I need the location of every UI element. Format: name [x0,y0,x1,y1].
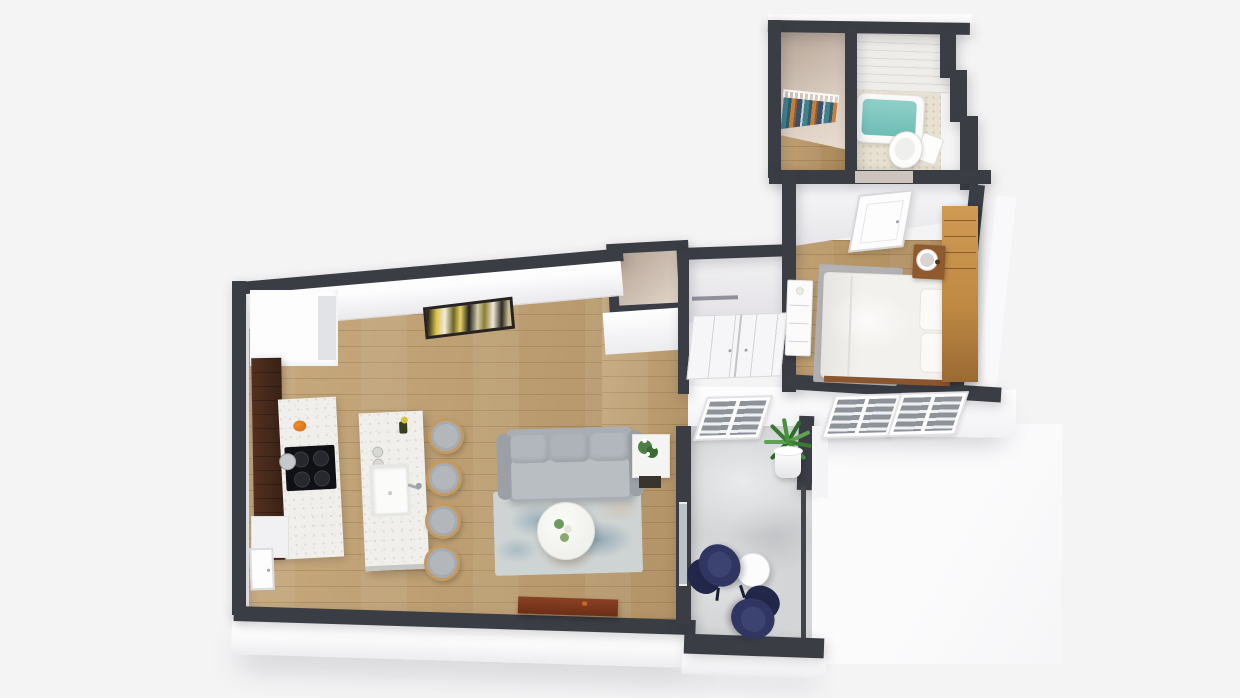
bar-stool [424,545,460,581]
plant-pot-rim [773,446,803,456]
bedroom-door [848,189,914,252]
sink-drain [388,491,392,495]
island-canister [372,446,383,457]
entry-closet-wall-face [603,307,688,355]
coffee-table [537,502,595,560]
bar-stool [425,503,461,539]
plant-flower [652,444,657,449]
window-bedroom-2 [887,391,970,437]
sink-faucet-base [416,483,422,489]
bar-stool [426,460,462,496]
bar-stool [428,418,464,454]
dresser [785,280,814,357]
wall-closet-bath-divider [845,26,857,176]
plant-flower [646,452,650,456]
burner [314,470,331,487]
entry-door-handle [267,569,270,572]
table-flowers [564,525,572,533]
burner [294,471,311,488]
wall-topblock-right-step2 [950,70,967,122]
entry-closet-interior [617,251,680,306]
shelf-line [944,236,976,237]
exterior-wall-face-bedroom-east [976,196,1017,397]
hall-closet-doors [686,312,787,379]
plant-flower [642,438,647,443]
table-flowers [554,519,564,529]
dresser-drawer-line [789,305,809,307]
shelf-line [944,268,976,269]
sofa-seat [511,458,630,499]
wall-topblock-left [768,20,781,178]
bed [820,272,952,382]
sofa-cushion [590,432,629,461]
shelf-line [944,220,976,221]
balcony-plant [760,412,820,482]
closet-door-knob [728,349,731,352]
closet-door-knob [744,349,747,352]
fridge-nook [250,290,338,366]
island-sink [369,463,411,517]
closet-door-split [734,315,743,377]
window-pane [925,396,963,431]
headboard-shelf-unit [942,206,978,382]
entry-door [249,548,274,591]
bedroom-doorway-gap [855,171,913,183]
duvet-fold [847,276,852,376]
toilet-seat [891,135,918,163]
sofa-cushion [550,434,589,463]
media-console [518,596,618,616]
dresser-drawer-line [789,323,809,325]
pumpkin [293,420,307,432]
console-decor [582,601,587,605]
nightstand [912,244,946,280]
shelf-line [944,252,976,253]
side-table [632,434,668,490]
wall-main-left [232,281,246,615]
floorplan-render [0,0,1240,698]
fridge-top [318,296,336,360]
exterior-wall-face-right [812,424,1062,664]
side-table-base [639,476,661,488]
dresser-decor [796,287,804,295]
nightstand-decor [935,259,940,264]
table-flowers [560,533,569,542]
dresser-drawer-line [788,341,808,343]
sofa-cushion [510,435,549,464]
burner [313,450,330,467]
kitchen-island [359,411,430,572]
balcony-rail-east [801,486,806,644]
chair-leg [739,585,746,598]
sofa [496,424,644,504]
